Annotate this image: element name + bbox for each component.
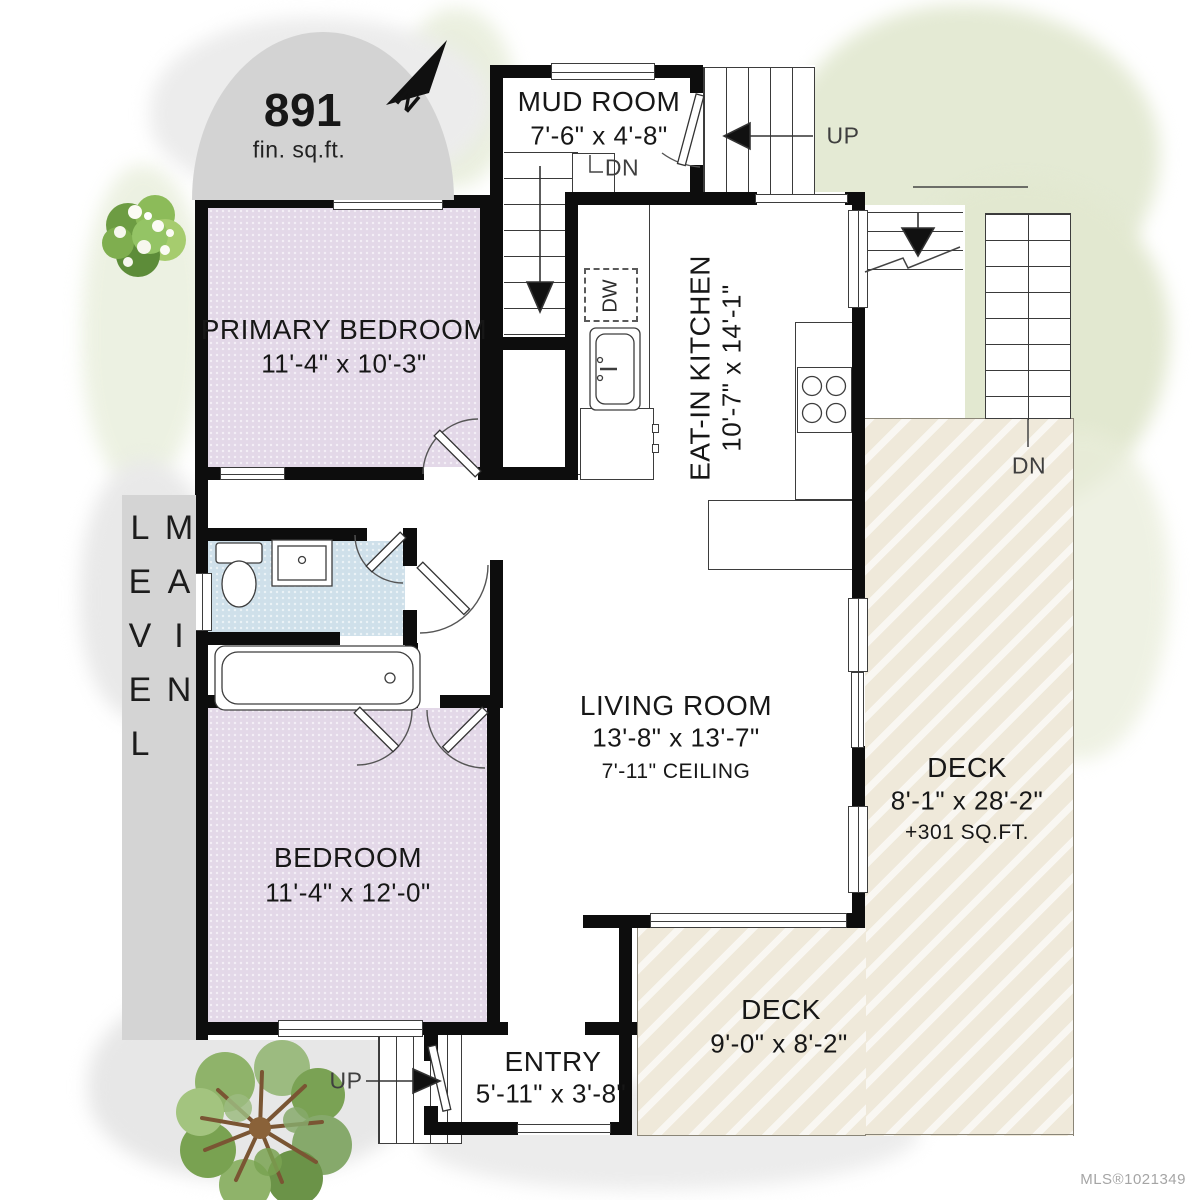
toilet-tank: [216, 543, 262, 563]
dn-label-interior: DN: [605, 155, 639, 182]
room-name-entry: ENTRY: [505, 1046, 602, 1078]
area-value: 891: [264, 83, 342, 137]
sink-handle: [598, 358, 603, 363]
room-dims-mudroom: 7'-6" x 4'-8": [530, 121, 668, 152]
up-label-upper: UP: [827, 123, 860, 150]
toilet-bowl: [222, 561, 256, 607]
dishwasher-label: DW: [599, 279, 621, 312]
room-dims-primary: 11'-4" x 10'-3": [261, 349, 426, 380]
room-dims-deck-rear: 9'-0" x 8'-2": [710, 1029, 848, 1060]
dn-label-deck: DN: [1012, 453, 1046, 480]
room-dims-bedroom: 11'-4" x 12'-0": [265, 878, 430, 909]
up-label-entry: UP: [330, 1068, 363, 1095]
down-arrow-icon: [527, 282, 553, 312]
room-dims-kitchen: 10'-7" x 14'-1": [717, 255, 748, 481]
door-leaf: [417, 562, 469, 614]
door-leaves: [354, 94, 704, 1111]
door-leaf: [434, 430, 481, 477]
room-name-mudroom: MUD ROOM: [518, 86, 681, 118]
room-name-primary: PRIMARY BEDROOM: [201, 314, 488, 346]
room-dims-living: 13'-8" x 13'-7": [592, 723, 759, 754]
room-area-deck-side: +301 SQ.FT.: [905, 821, 1029, 845]
burner: [827, 377, 846, 396]
room-dims-entry: 5'-11" x 3'-8": [476, 1079, 627, 1110]
vanity-faucet: [299, 557, 306, 564]
door-leaf: [443, 707, 488, 752]
left-arrow-icon: [724, 123, 750, 149]
floor-plan: DW 891 fin. sq.ft. N MAIN LEVEL MUD ROOM…: [0, 0, 1200, 1200]
door-leaf: [366, 532, 406, 572]
room-ceiling-living: 7'-11" CEILING: [602, 760, 751, 784]
burner: [803, 404, 822, 423]
area-unit: fin. sq.ft.: [253, 137, 345, 164]
room-name-living: LIVING ROOM: [580, 690, 772, 722]
stair-break-line: [865, 247, 960, 272]
room-name-deck-side: DECK: [927, 752, 1007, 784]
burner: [803, 377, 822, 396]
level-band: MAIN LEVEL: [122, 495, 196, 1040]
burner: [827, 404, 846, 423]
dn-callout-line: [590, 155, 603, 172]
door-leaf: [678, 94, 704, 166]
door-leaf: [354, 707, 399, 752]
mls-watermark: MLS®1021349: [1080, 1171, 1186, 1188]
room-name-deck-rear: DECK: [741, 994, 821, 1026]
room-name-kitchen: EAT-IN KITCHEN: [685, 255, 717, 481]
room-dims-deck-side: 8'-1" x 28'-2": [891, 786, 1043, 817]
down-arrow-icon: [902, 228, 934, 256]
tub-drain: [385, 673, 395, 683]
level-label: MAIN LEVEL: [120, 495, 198, 1040]
sink-handle: [598, 376, 603, 381]
room-name-bedroom: BEDROOM: [274, 842, 422, 874]
